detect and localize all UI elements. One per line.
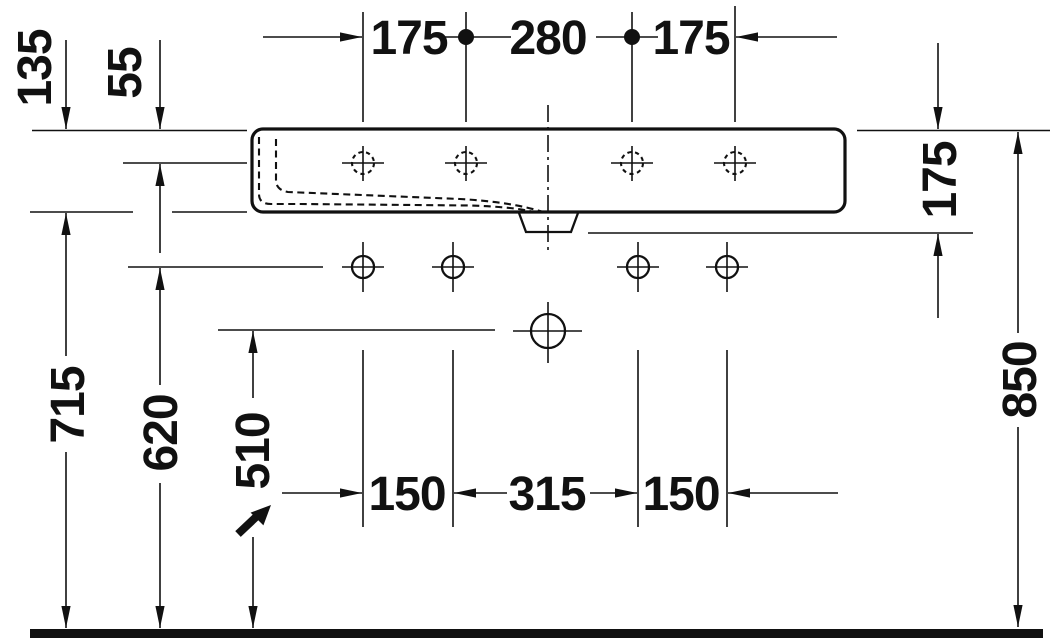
faucet-hole	[342, 146, 384, 181]
dim-chain-top: 175 280 175	[263, 6, 837, 122]
dim-label-bottom-150-left: 150	[368, 468, 445, 521]
dim-label-55: 55	[99, 47, 152, 99]
basin-hidden-profile-outer	[259, 137, 533, 212]
faucet-hole	[714, 146, 756, 181]
dim-label-175-right: 175	[914, 141, 967, 218]
dim-510: 510	[227, 331, 280, 628]
faucet-hole	[611, 146, 653, 181]
mounting-hole	[342, 242, 384, 292]
dim-label-top-280: 280	[509, 12, 586, 65]
basin-hidden-profile-inner	[276, 139, 543, 212]
mounting-hole	[706, 242, 748, 292]
dim-label-510: 510	[227, 412, 280, 489]
mounting-hole	[432, 242, 474, 292]
dim-label-bottom-315: 315	[508, 468, 585, 521]
dim-label-850: 850	[994, 341, 1047, 418]
dim-label-bottom-150-right: 150	[642, 468, 719, 521]
washbasin-dimension-drawing: 175 280 175 150 315 150 135 55 715 620	[0, 0, 1059, 638]
dim-175-right: 175	[914, 43, 967, 318]
direction-arrow-icon	[238, 505, 271, 534]
drain-connection	[513, 302, 582, 363]
mounting-hole	[617, 242, 659, 292]
mounting-holes	[342, 242, 748, 292]
faucet-hole	[445, 146, 487, 181]
dim-label-620: 620	[135, 394, 188, 471]
dim-850: 850	[994, 132, 1047, 627]
dim-label-715: 715	[42, 366, 95, 443]
dim-135: 135	[9, 29, 66, 129]
chain-dot	[458, 29, 474, 45]
dim-620: 620	[135, 268, 188, 628]
reference-lines	[30, 131, 1050, 331]
dim-55: 55	[99, 40, 160, 253]
technical-drawing-canvas: 175 280 175 150 315 150 135 55 715 620	[0, 0, 1059, 638]
dim-chain-bottom: 150 315 150	[282, 350, 838, 527]
faucet-holes	[342, 146, 756, 181]
chain-dot	[624, 29, 640, 45]
dim-label-top-175-right: 175	[652, 12, 729, 65]
dim-715: 715	[42, 213, 95, 628]
dim-label-135: 135	[9, 29, 62, 106]
floor-line	[30, 629, 1043, 638]
dim-label-top-175-left: 175	[370, 12, 447, 65]
